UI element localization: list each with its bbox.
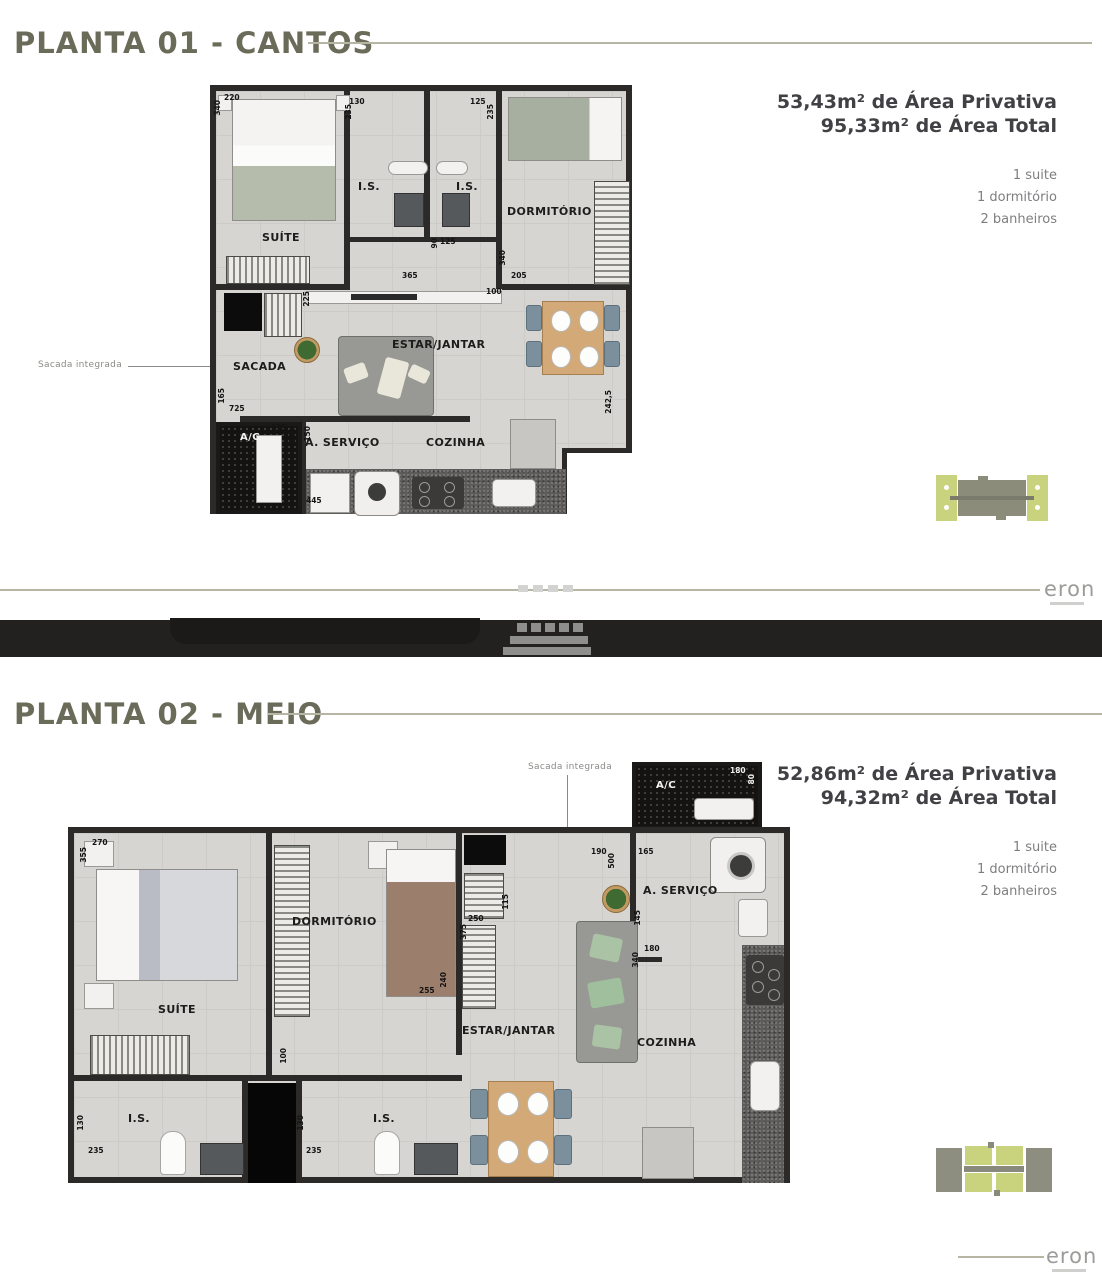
- plate: [527, 1140, 549, 1164]
- dim-label: 255: [419, 986, 435, 995]
- plan1-area-privativa: 53,43m² de Área Privativa: [777, 90, 1057, 114]
- dim-label: 180: [644, 944, 660, 953]
- tv: [351, 294, 417, 300]
- burner: [419, 496, 430, 507]
- sofa-pillow: [343, 362, 369, 385]
- burner: [768, 989, 780, 1001]
- wall: [344, 237, 502, 242]
- dim-label: 115: [501, 894, 510, 910]
- keyplan-cantos-icon: [936, 472, 1048, 524]
- laundry-cabinet: [310, 473, 350, 513]
- dim-label: 90: [430, 238, 439, 248]
- dorm-bed: [508, 97, 622, 161]
- room-label-ac: A/C: [240, 432, 260, 443]
- suite-bed: [96, 869, 238, 981]
- chair: [470, 1135, 488, 1165]
- dim-label: 235: [486, 104, 495, 120]
- room-label-cozinha2: COZINHA: [637, 1036, 696, 1049]
- dim-label: 180: [730, 766, 746, 775]
- keyplan-unit: [965, 1173, 992, 1192]
- footer-brand-subtext: [1052, 1269, 1086, 1272]
- wall: [344, 91, 350, 289]
- dim-label: 130: [296, 1115, 305, 1131]
- dim-label: 375: [459, 924, 468, 940]
- room-label-dormitorio: DORMITÓRIO: [507, 205, 592, 218]
- dim-label: 365: [402, 271, 418, 280]
- plan1-note-sacada: Sacada integrada: [38, 360, 122, 370]
- dim-label: 165: [217, 388, 226, 404]
- nightstand: [84, 983, 114, 1009]
- wall: [296, 1081, 302, 1183]
- keyplan-dot: [1035, 485, 1040, 490]
- dim-label: 125: [470, 97, 486, 106]
- tv-panel: [464, 835, 506, 865]
- plant: [602, 885, 630, 913]
- keyplan-end-left: [936, 1148, 962, 1192]
- keyplan-dot: [944, 485, 949, 490]
- chair: [604, 305, 620, 331]
- band-shape: [170, 618, 480, 644]
- washer-drum: [727, 852, 755, 880]
- keyplan-unit: [996, 1146, 1023, 1165]
- sofa-pillow: [407, 363, 431, 384]
- dorm-wardrobe: [594, 181, 630, 285]
- sink: [492, 479, 536, 507]
- dim-label: 130: [76, 1115, 85, 1131]
- toilet: [374, 1131, 400, 1175]
- dim-label: 145: [633, 910, 642, 926]
- burner: [444, 482, 455, 493]
- keyplan-dot: [944, 505, 949, 510]
- dim-label: 250: [468, 914, 484, 923]
- footer-brand-logo: eron: [1046, 1244, 1097, 1268]
- room-label-estar: ESTAR/JANTAR: [392, 338, 485, 351]
- dim-label: 220: [224, 93, 240, 102]
- plan1-note-leader: [128, 366, 212, 367]
- flyer-page: { "page1": { "title": "PLANTA 01 - CANTO…: [0, 0, 1102, 1280]
- plan2-title-rule: [268, 713, 1102, 715]
- plan1-notch: [567, 453, 632, 514]
- room-label-ac2: A/C: [656, 780, 676, 791]
- plate: [497, 1092, 519, 1116]
- room-label-estar2: ESTAR/JANTAR: [462, 1024, 555, 1037]
- dim-label: 80: [747, 774, 756, 784]
- room-label-is2: I.S.: [456, 180, 478, 193]
- keyplan-unit: [996, 1173, 1023, 1192]
- toilet: [160, 1131, 186, 1175]
- chair: [526, 341, 542, 367]
- burner: [768, 969, 780, 981]
- watermark-dash: [533, 585, 543, 592]
- keyplan-corridor: [964, 1166, 1024, 1172]
- dim-label: 270: [92, 838, 108, 847]
- dorm-closet: [274, 845, 310, 1017]
- footer-rule: [958, 1256, 1044, 1258]
- divider-brand-logo: eron: [1044, 577, 1095, 601]
- vanity: [414, 1143, 458, 1175]
- ac-unit: [694, 798, 754, 820]
- dim-label: 242,5: [604, 390, 613, 414]
- plan1-features: 1 suite 1 dormitório 2 banheiros: [977, 165, 1057, 231]
- stove: [746, 955, 784, 1005]
- dim-label: 340: [498, 250, 507, 266]
- laundry-tank: [738, 899, 768, 937]
- plan2-note-sacada: Sacada integrada: [528, 762, 612, 772]
- plate: [579, 310, 599, 332]
- room-label-servico: A. SERVIÇO: [305, 436, 380, 449]
- dim-label: 125: [440, 237, 456, 246]
- dim-label: 150: [303, 426, 312, 442]
- dim-label: 100: [279, 1048, 288, 1064]
- plate: [551, 310, 571, 332]
- ac-unit: [256, 435, 282, 503]
- keyplan-dot: [1035, 505, 1040, 510]
- sofa: [576, 921, 638, 1063]
- plan1-areas: 53,43m² de Área Privativa 95,33m² de Áre…: [777, 90, 1057, 138]
- is1-vanity: [394, 193, 424, 227]
- plan2-feature-banheiros: 2 banheiros: [977, 881, 1057, 903]
- chair: [604, 341, 620, 367]
- wall: [266, 833, 272, 1081]
- sacada-shelf: [264, 293, 302, 337]
- is1-tub: [388, 161, 428, 175]
- dim-label: 235: [344, 104, 353, 120]
- dim-label: 190: [591, 847, 607, 856]
- burner: [752, 981, 764, 993]
- dim-label: 340: [213, 100, 222, 116]
- wall: [74, 1075, 462, 1081]
- building-logo-bar: [517, 623, 583, 632]
- plate: [579, 346, 599, 368]
- watermark-dash: [518, 585, 528, 592]
- keyplan-tab: [996, 514, 1006, 520]
- sacada-cabinet: [224, 293, 262, 331]
- dim-label: 235: [306, 1146, 322, 1155]
- dim-label: 500: [607, 853, 616, 869]
- plan1-floorplan: [210, 85, 632, 514]
- room-label-servico2: A. SERVIÇO: [643, 884, 718, 897]
- plan2-feature-dormitorio: 1 dormitório: [977, 859, 1057, 881]
- plan1-feature-dormitorio: 1 dormitório: [977, 187, 1057, 209]
- suite-closet: [90, 1035, 190, 1075]
- divider-brand-subtext: [1050, 602, 1084, 605]
- dim-label: 340: [631, 952, 640, 968]
- plan1-feature-banheiros: 2 banheiros: [977, 209, 1057, 231]
- dim-label: 155: [288, 428, 297, 444]
- dim-label: 225: [302, 291, 311, 307]
- dim-label: 355: [79, 847, 88, 863]
- keyplan-tab: [978, 476, 988, 482]
- dining-table: [488, 1081, 554, 1177]
- plate: [551, 346, 571, 368]
- chair: [470, 1089, 488, 1119]
- plan1-title-rule: [308, 42, 1092, 44]
- fridge: [642, 1127, 694, 1179]
- plan2-features: 1 suite 1 dormitório 2 banheiros: [977, 837, 1057, 903]
- plan1-feature-suite: 1 suite: [977, 165, 1057, 187]
- suite-closet: [226, 256, 310, 284]
- burner: [752, 961, 764, 973]
- plate: [527, 1092, 549, 1116]
- watermark-dash: [563, 585, 573, 592]
- room-label-is1: I.S.: [358, 180, 380, 193]
- dim-label: 240: [439, 972, 448, 988]
- sofa-pillow: [587, 977, 625, 1009]
- room-label-dormitorio2: DORMITÓRIO: [292, 915, 377, 928]
- chair: [526, 305, 542, 331]
- plan2-note-leader: [567, 775, 568, 827]
- plant: [294, 337, 320, 363]
- keyplan-tab: [988, 1142, 994, 1148]
- plan1-area-total: 95,33m² de Área Total: [777, 114, 1057, 138]
- building-logo-bar: [503, 647, 591, 655]
- plan2-areas: 52,86m² de Área Privativa 94,32m² de Áre…: [777, 762, 1057, 810]
- dim-label: 135: [271, 423, 287, 432]
- burner: [419, 482, 430, 493]
- dim-label: 205: [511, 271, 527, 280]
- plan2-area-total: 94,32m² de Área Total: [777, 786, 1057, 810]
- dim-label: 445: [306, 496, 322, 505]
- room-label-cozinha: COZINHA: [426, 436, 485, 449]
- dim-label: 725: [229, 404, 245, 413]
- keyplan-corridor: [950, 496, 1034, 500]
- chair: [554, 1135, 572, 1165]
- vanity: [200, 1143, 244, 1175]
- dim-label: 100: [486, 287, 502, 296]
- divider-band: [0, 620, 1102, 657]
- sofa-pillow: [589, 933, 623, 963]
- plan2-feature-suite: 1 suite: [977, 837, 1057, 859]
- dim-label: 165: [638, 847, 654, 856]
- is2-tub: [436, 161, 468, 175]
- fridge: [510, 419, 556, 469]
- keyplan-meio-icon: [936, 1140, 1052, 1198]
- building-logo-bar: [510, 636, 588, 644]
- room-label-suite2: SUÍTE: [158, 1003, 196, 1016]
- dim-label: 235: [88, 1146, 104, 1155]
- plate: [497, 1140, 519, 1164]
- keyplan-unit: [965, 1146, 992, 1165]
- room-label-is2-2: I.S.: [373, 1112, 395, 1125]
- plan2-area-privativa: 52,86m² de Área Privativa: [777, 762, 1057, 786]
- sofa-pillow: [592, 1024, 623, 1050]
- room-label-sacada: SACADA: [233, 360, 286, 373]
- room-label-is1-2: I.S.: [128, 1112, 150, 1125]
- chair: [554, 1089, 572, 1119]
- washer-drum: [368, 483, 386, 501]
- watermark-dash: [548, 585, 558, 592]
- stove: [412, 477, 464, 509]
- keyplan-end-right: [1026, 1148, 1052, 1192]
- is2-vanity: [442, 193, 470, 227]
- suite-bed: [232, 99, 336, 221]
- sink: [750, 1061, 780, 1111]
- sofa-pillow: [376, 357, 409, 400]
- wall: [216, 284, 350, 290]
- shaft: [248, 1083, 296, 1183]
- burner: [444, 496, 455, 507]
- room-label-suite: SUÍTE: [262, 231, 300, 244]
- keyplan-tab: [994, 1190, 1000, 1196]
- washing-machine: [710, 837, 766, 893]
- wall-rack: [464, 873, 504, 919]
- dining-table: [542, 301, 604, 375]
